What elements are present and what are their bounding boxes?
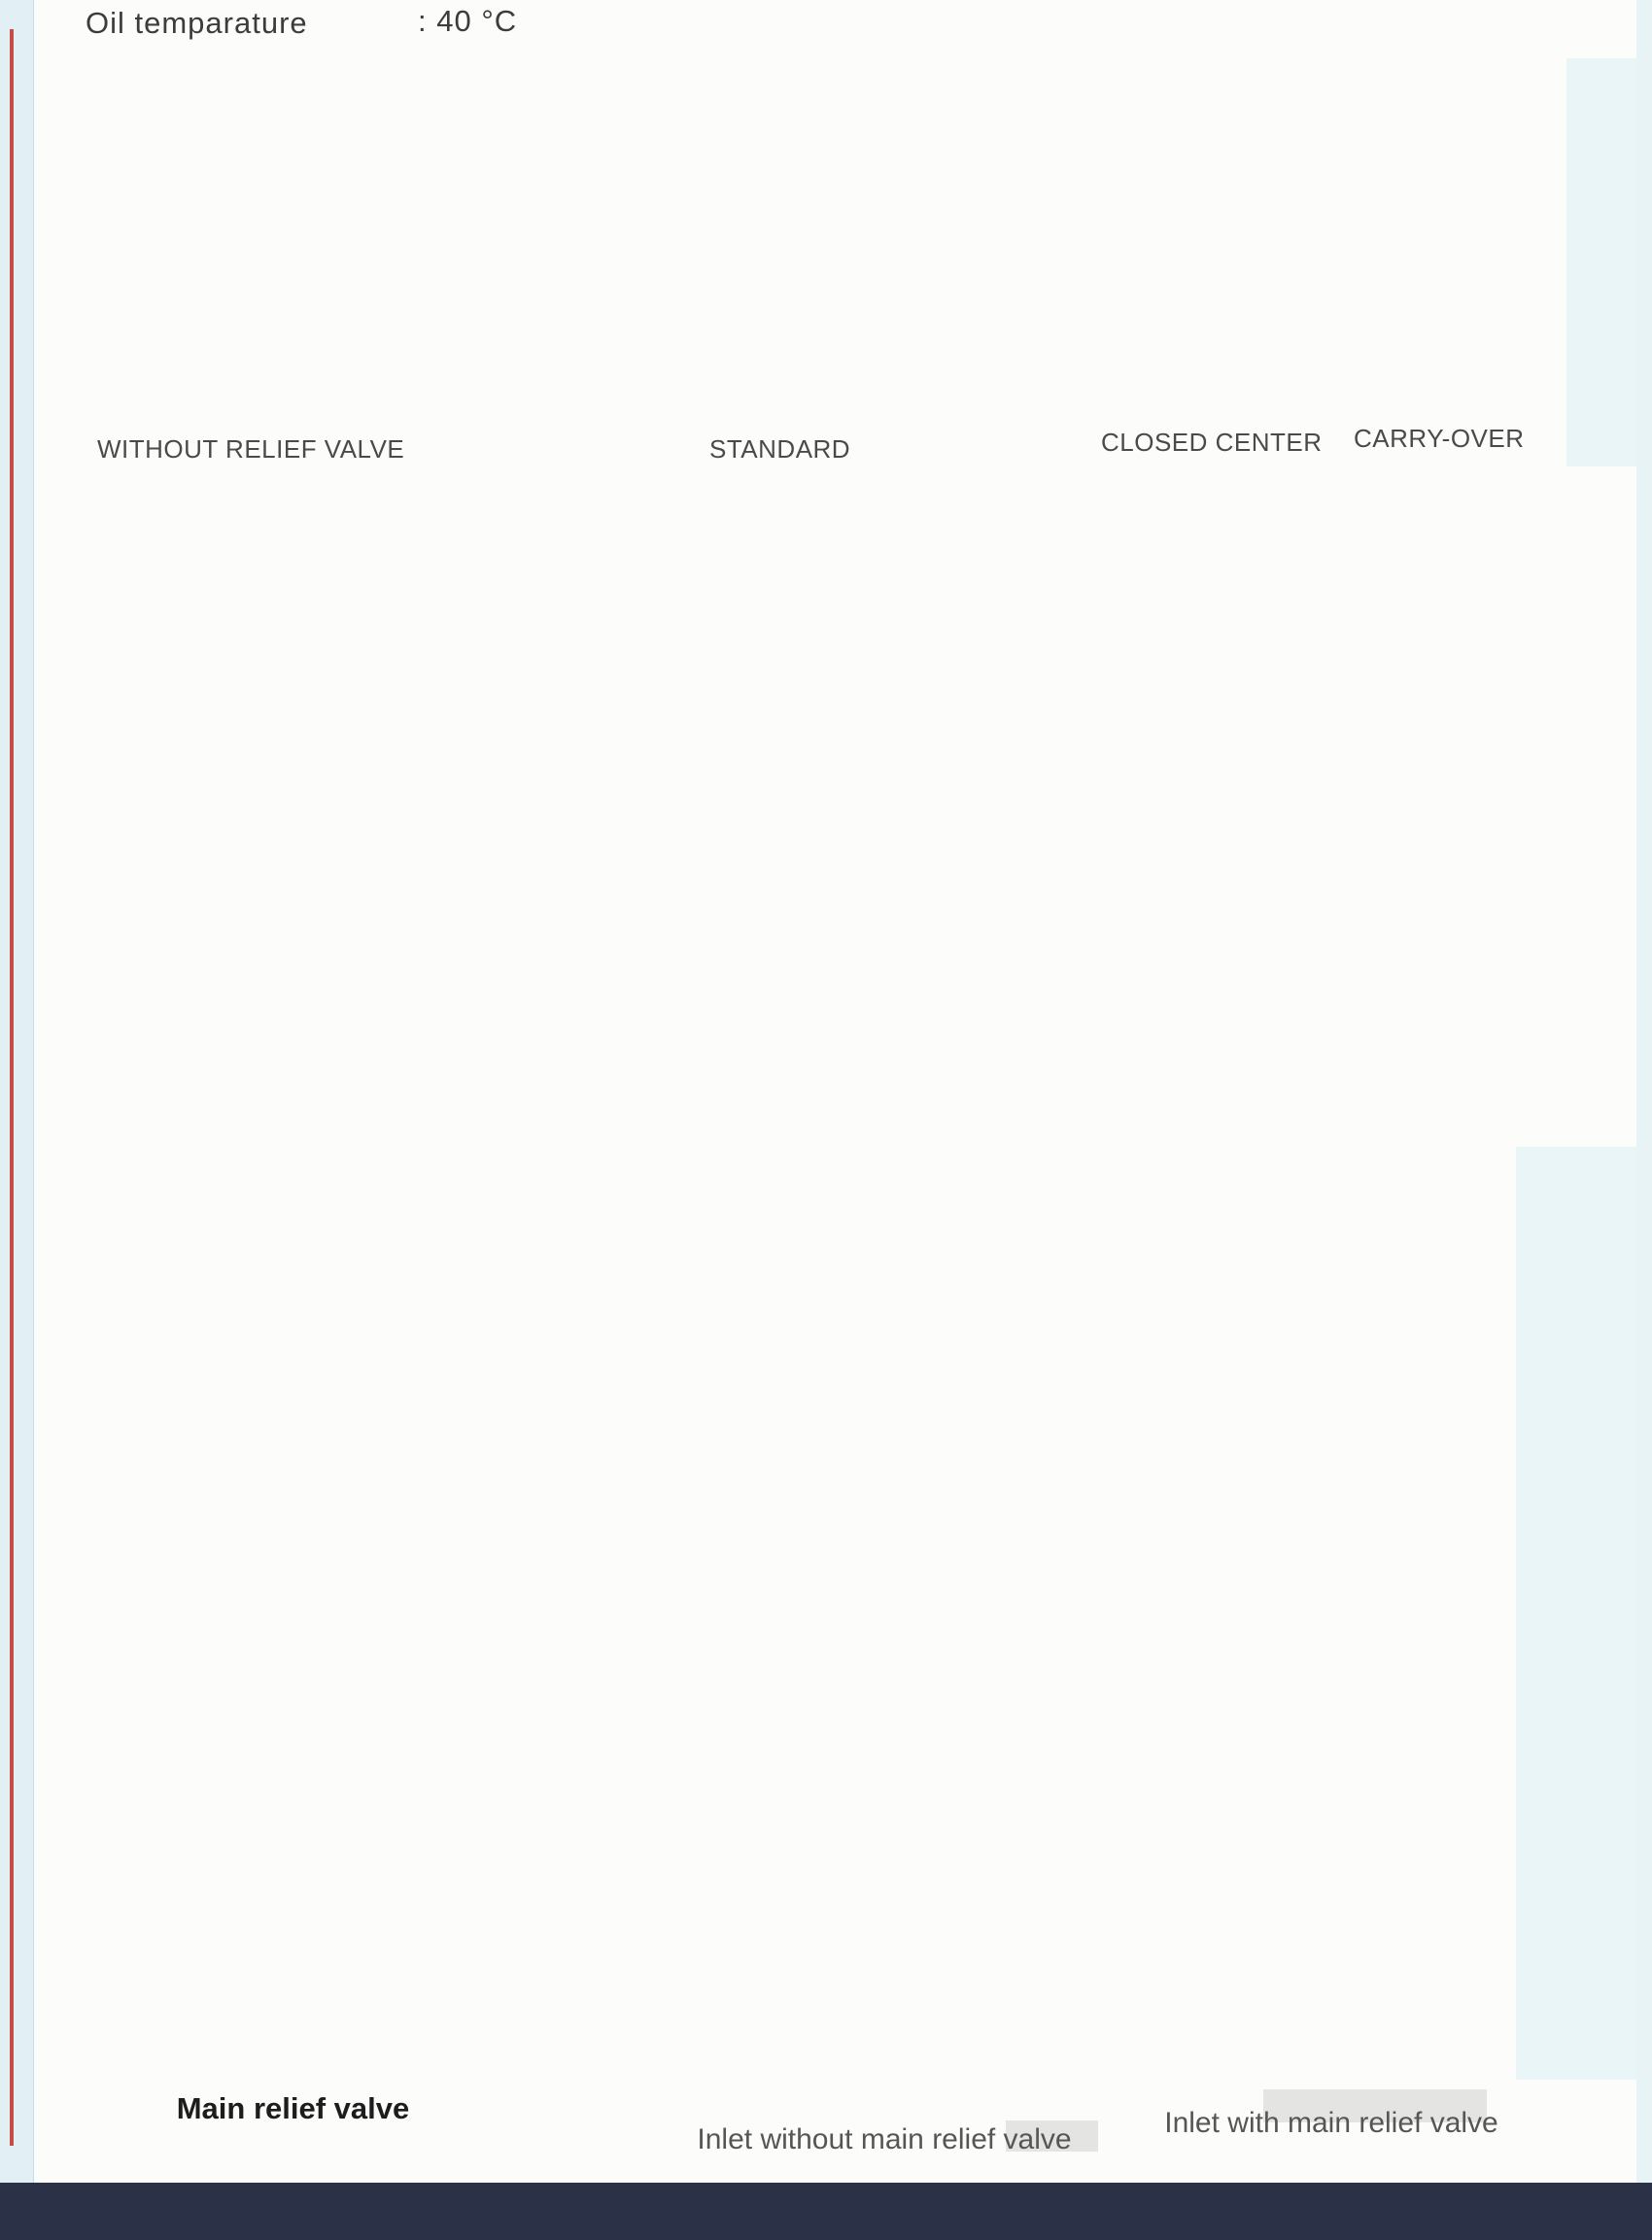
caption-inlet-without-relief: Inlet without main relief valve	[671, 2123, 1098, 2156]
caption-main-relief-valve: Main relief valve	[126, 2091, 460, 2126]
section-title-closed-center: CLOSED CENTER	[1101, 428, 1323, 458]
caption-inlet-with-relief: Inlet with main relief valve	[1152, 2107, 1511, 2140]
footer-bar: 9	[0, 2183, 1652, 2240]
section-title-standard: STANDARD	[709, 434, 850, 465]
section-title-carry-over: CARRY-OVER	[1354, 424, 1525, 454]
catalog-page: Oil temparature : 40 °C WITHOUT RELIEF V…	[0, 0, 1652, 2240]
schematic-artwork	[0, 0, 1652, 2240]
section-title-without-relief-valve: WITHOUT RELIEF VALVE	[97, 434, 404, 465]
